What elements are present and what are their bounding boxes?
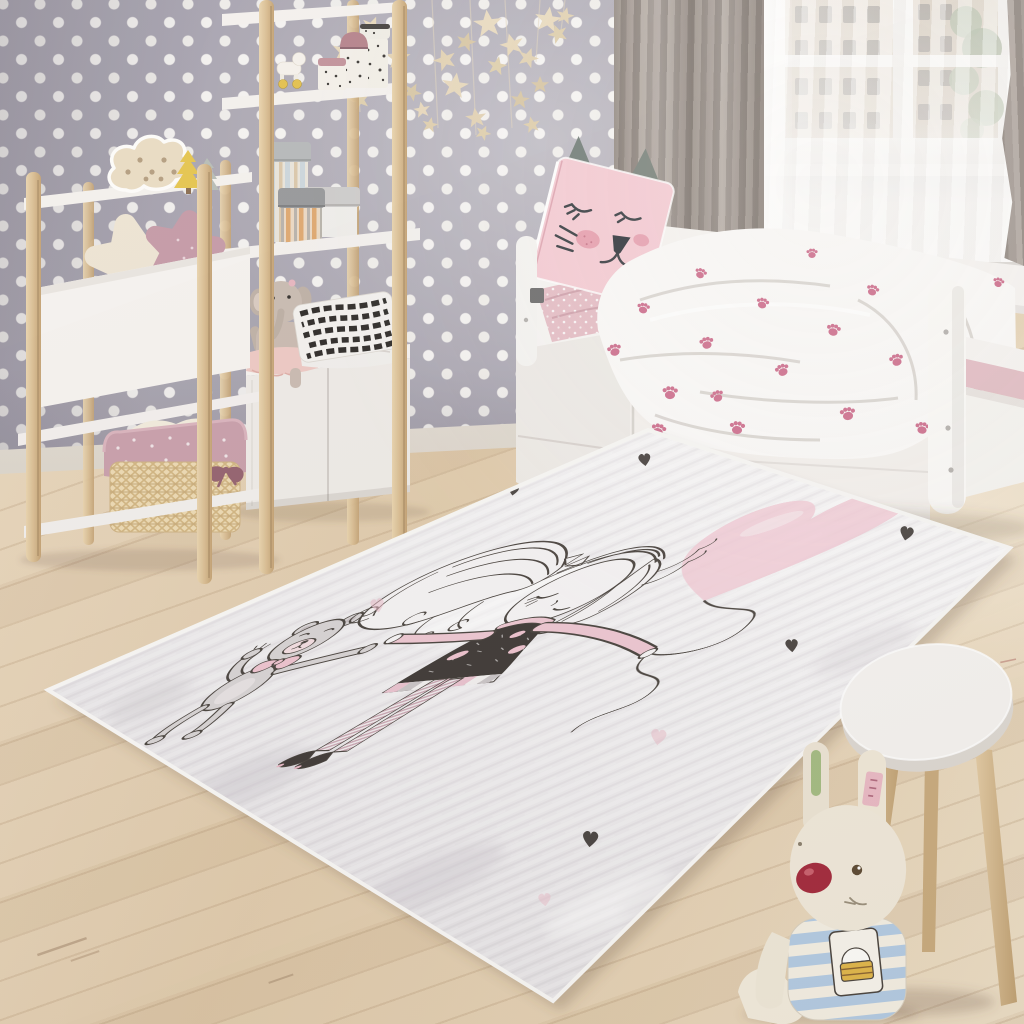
bunny-head [782, 798, 914, 939]
kids-room-photo [0, 0, 1024, 1024]
bunny-cake-patch [829, 928, 883, 997]
foreground-props [0, 0, 1024, 1024]
bunny-eye [852, 865, 862, 875]
